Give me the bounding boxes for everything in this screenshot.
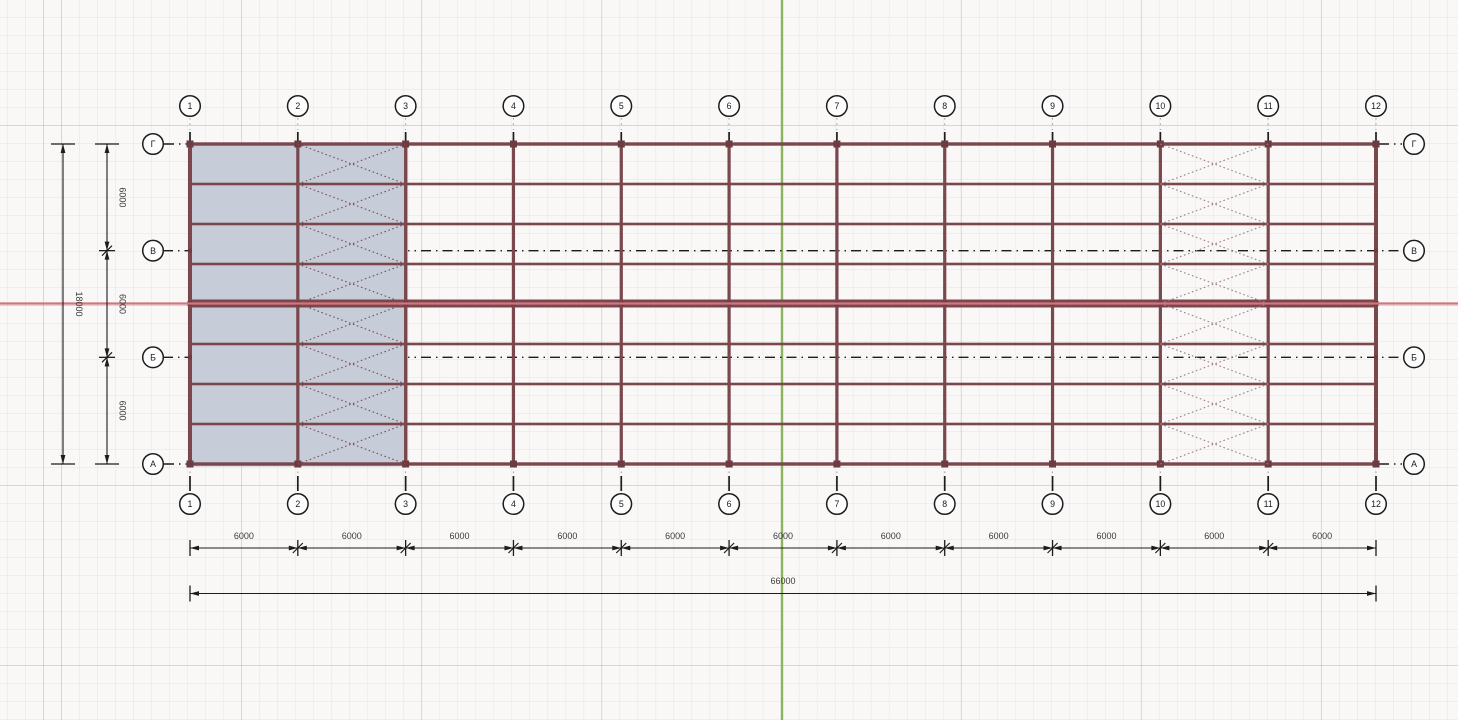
bubble-label[interactable]: 6 <box>727 499 732 509</box>
bubble-label[interactable]: 2 <box>295 499 300 509</box>
dim-segment-label[interactable]: 6000 <box>773 531 793 541</box>
column-node <box>1049 141 1056 148</box>
column-node <box>941 461 948 468</box>
row-bubble-left-2[interactable]: В <box>143 240 164 261</box>
bubble-label[interactable]: 4 <box>511 101 516 111</box>
grid-bubble-bottom-6[interactable]: 6 <box>719 494 740 515</box>
dim-arrow <box>61 144 66 153</box>
bubble-label[interactable]: 5 <box>619 499 624 509</box>
dim-arrow <box>1367 546 1376 551</box>
beam[interactable] <box>188 383 1378 386</box>
dim-segment-label[interactable]: 6000 <box>118 294 128 314</box>
bubble-label[interactable]: Б <box>150 352 156 362</box>
grid-bubble-top-3[interactable]: 3 <box>395 96 416 117</box>
dim-segment-label[interactable]: 6000 <box>665 531 685 541</box>
edge-node <box>188 249 192 253</box>
grid-bubble-bottom-9[interactable]: 9 <box>1042 494 1063 515</box>
bubble-label[interactable]: 1 <box>188 101 193 111</box>
dim-total-label[interactable]: 66000 <box>770 576 795 586</box>
column-node <box>510 141 517 148</box>
bubble-label[interactable]: 5 <box>619 101 624 111</box>
grid-bubble-top-12[interactable]: 12 <box>1366 96 1387 117</box>
bubble-label[interactable]: 7 <box>834 101 839 111</box>
bubble-label[interactable]: 1 <box>188 499 193 509</box>
grid-bubble-bottom-4[interactable]: 4 <box>503 494 524 515</box>
grid-bubble-top-10[interactable]: 10 <box>1150 96 1171 117</box>
dim-segment-label[interactable]: 6000 <box>1204 531 1224 541</box>
grid-bubble-bottom-10[interactable]: 10 <box>1150 494 1171 515</box>
column-node <box>1049 461 1056 468</box>
column-node <box>618 461 625 468</box>
dim-segment-label[interactable]: 6000 <box>234 531 254 541</box>
dim-segment-label[interactable]: 6000 <box>118 401 128 421</box>
bubble-label[interactable]: 3 <box>403 101 408 111</box>
bubble-label[interactable]: 7 <box>834 499 839 509</box>
bubble-label[interactable]: 9 <box>1050 101 1055 111</box>
grid-bubble-top-8[interactable]: 8 <box>934 96 955 117</box>
bubble-label[interactable]: В <box>150 246 156 256</box>
bubble-label[interactable]: 12 <box>1371 101 1381 111</box>
dim-arrow <box>105 455 110 464</box>
dim-arrow <box>105 144 110 153</box>
edge-node <box>1374 355 1378 359</box>
column-node <box>726 141 733 148</box>
dim-segment-label[interactable]: 6000 <box>881 531 901 541</box>
dim-segment-label[interactable]: 6000 <box>342 531 362 541</box>
bubble-label[interactable]: 8 <box>942 101 947 111</box>
column-node <box>618 141 625 148</box>
grid-bubble-top-6[interactable]: 6 <box>719 96 740 117</box>
bubble-label[interactable]: 3 <box>403 499 408 509</box>
beam[interactable] <box>188 423 1378 426</box>
grid-bubble-bottom-12[interactable]: 12 <box>1366 494 1387 515</box>
edge-node <box>1374 249 1378 253</box>
dim-total-label[interactable]: 18000 <box>74 291 84 316</box>
column-node <box>510 461 517 468</box>
dim-arrow <box>61 455 66 464</box>
row-bubble-left-4[interactable]: А <box>143 454 164 475</box>
bubble-label[interactable]: 10 <box>1155 101 1165 111</box>
dim-segment-label[interactable]: 6000 <box>118 187 128 207</box>
column-node <box>941 141 948 148</box>
bubble-label[interactable]: 9 <box>1050 499 1055 509</box>
beam[interactable] <box>188 183 1378 186</box>
bubble-label[interactable]: Г <box>1412 139 1417 149</box>
beam[interactable] <box>188 343 1378 346</box>
edge-node <box>188 355 192 359</box>
grid-bubble-bottom-3[interactable]: 3 <box>395 494 416 515</box>
bubble-label[interactable]: А <box>1411 459 1417 469</box>
grid-bubble-bottom-8[interactable]: 8 <box>934 494 955 515</box>
dim-segment-label[interactable]: 6000 <box>989 531 1009 541</box>
column-node <box>1373 461 1380 468</box>
dim-segment-label[interactable]: 6000 <box>450 531 470 541</box>
grid-bubble-top-4[interactable]: 4 <box>503 96 524 117</box>
dim-arrow <box>1367 591 1376 596</box>
dim-segment-label[interactable]: 6000 <box>1312 531 1332 541</box>
grid-bubble-top-5[interactable]: 5 <box>611 96 632 117</box>
column-node <box>833 141 840 148</box>
beam[interactable] <box>188 462 1378 465</box>
grid-bubble-bottom-1[interactable]: 1 <box>180 494 201 515</box>
column-node <box>833 461 840 468</box>
bubble-label[interactable]: 11 <box>1264 499 1273 509</box>
grid-bubble-top-7[interactable]: 7 <box>827 96 848 117</box>
bubble-label[interactable]: 2 <box>295 101 300 111</box>
beam[interactable] <box>188 142 1378 145</box>
row-bubble-left-3[interactable]: Б <box>143 347 164 368</box>
bubble-label[interactable]: 6 <box>727 101 732 111</box>
bubble-label[interactable]: 10 <box>1155 499 1165 509</box>
bubble-label[interactable]: А <box>150 459 156 469</box>
row-bubble-right-3[interactable]: Б <box>1404 347 1425 368</box>
dim-arrow <box>190 591 199 596</box>
column-node <box>1373 141 1380 148</box>
bubble-label[interactable]: 12 <box>1371 499 1381 509</box>
bubble-label[interactable]: 11 <box>1264 101 1273 111</box>
bubble-label[interactable]: 8 <box>942 499 947 509</box>
bubble-label[interactable]: Г <box>151 139 156 149</box>
grid-bubble-top-11[interactable]: 11 <box>1258 96 1279 117</box>
dim-segment-label[interactable]: 6000 <box>1096 531 1116 541</box>
row-bubble-right-1[interactable]: Г <box>1404 134 1425 155</box>
row-bubble-right-2[interactable]: В <box>1404 240 1425 261</box>
grid-bubble-bottom-11[interactable]: 11 <box>1258 494 1279 515</box>
cad-viewport[interactable]: 112233445566778899101011111212ГГВВББАА60… <box>0 0 1458 720</box>
grid-bubble-bottom-7[interactable]: 7 <box>827 494 848 515</box>
row-bubble-right-4[interactable]: А <box>1404 454 1425 475</box>
column-node <box>187 461 194 468</box>
grid-bubble-bottom-2[interactable]: 2 <box>288 494 309 515</box>
grid-bubble-bottom-5[interactable]: 5 <box>611 494 632 515</box>
column-node <box>726 461 733 468</box>
bubble-label[interactable]: Б <box>1411 352 1417 362</box>
column-node <box>187 141 194 148</box>
dim-segment-label[interactable]: 6000 <box>557 531 577 541</box>
grid-bubble-top-9[interactable]: 9 <box>1042 96 1063 117</box>
row-bubble-left-1[interactable]: Г <box>143 134 164 155</box>
beam[interactable] <box>188 223 1378 226</box>
bubble-label[interactable]: 4 <box>511 499 516 509</box>
bubble-label[interactable]: В <box>1411 246 1417 256</box>
dim-arrow <box>190 546 199 551</box>
drawing-layer[interactable]: 112233445566778899101011111212ГГВВББАА60… <box>0 0 1458 720</box>
grid-bubble-top-1[interactable]: 1 <box>180 96 201 117</box>
grid-bubble-top-2[interactable]: 2 <box>288 96 309 117</box>
beam[interactable] <box>188 263 1378 266</box>
